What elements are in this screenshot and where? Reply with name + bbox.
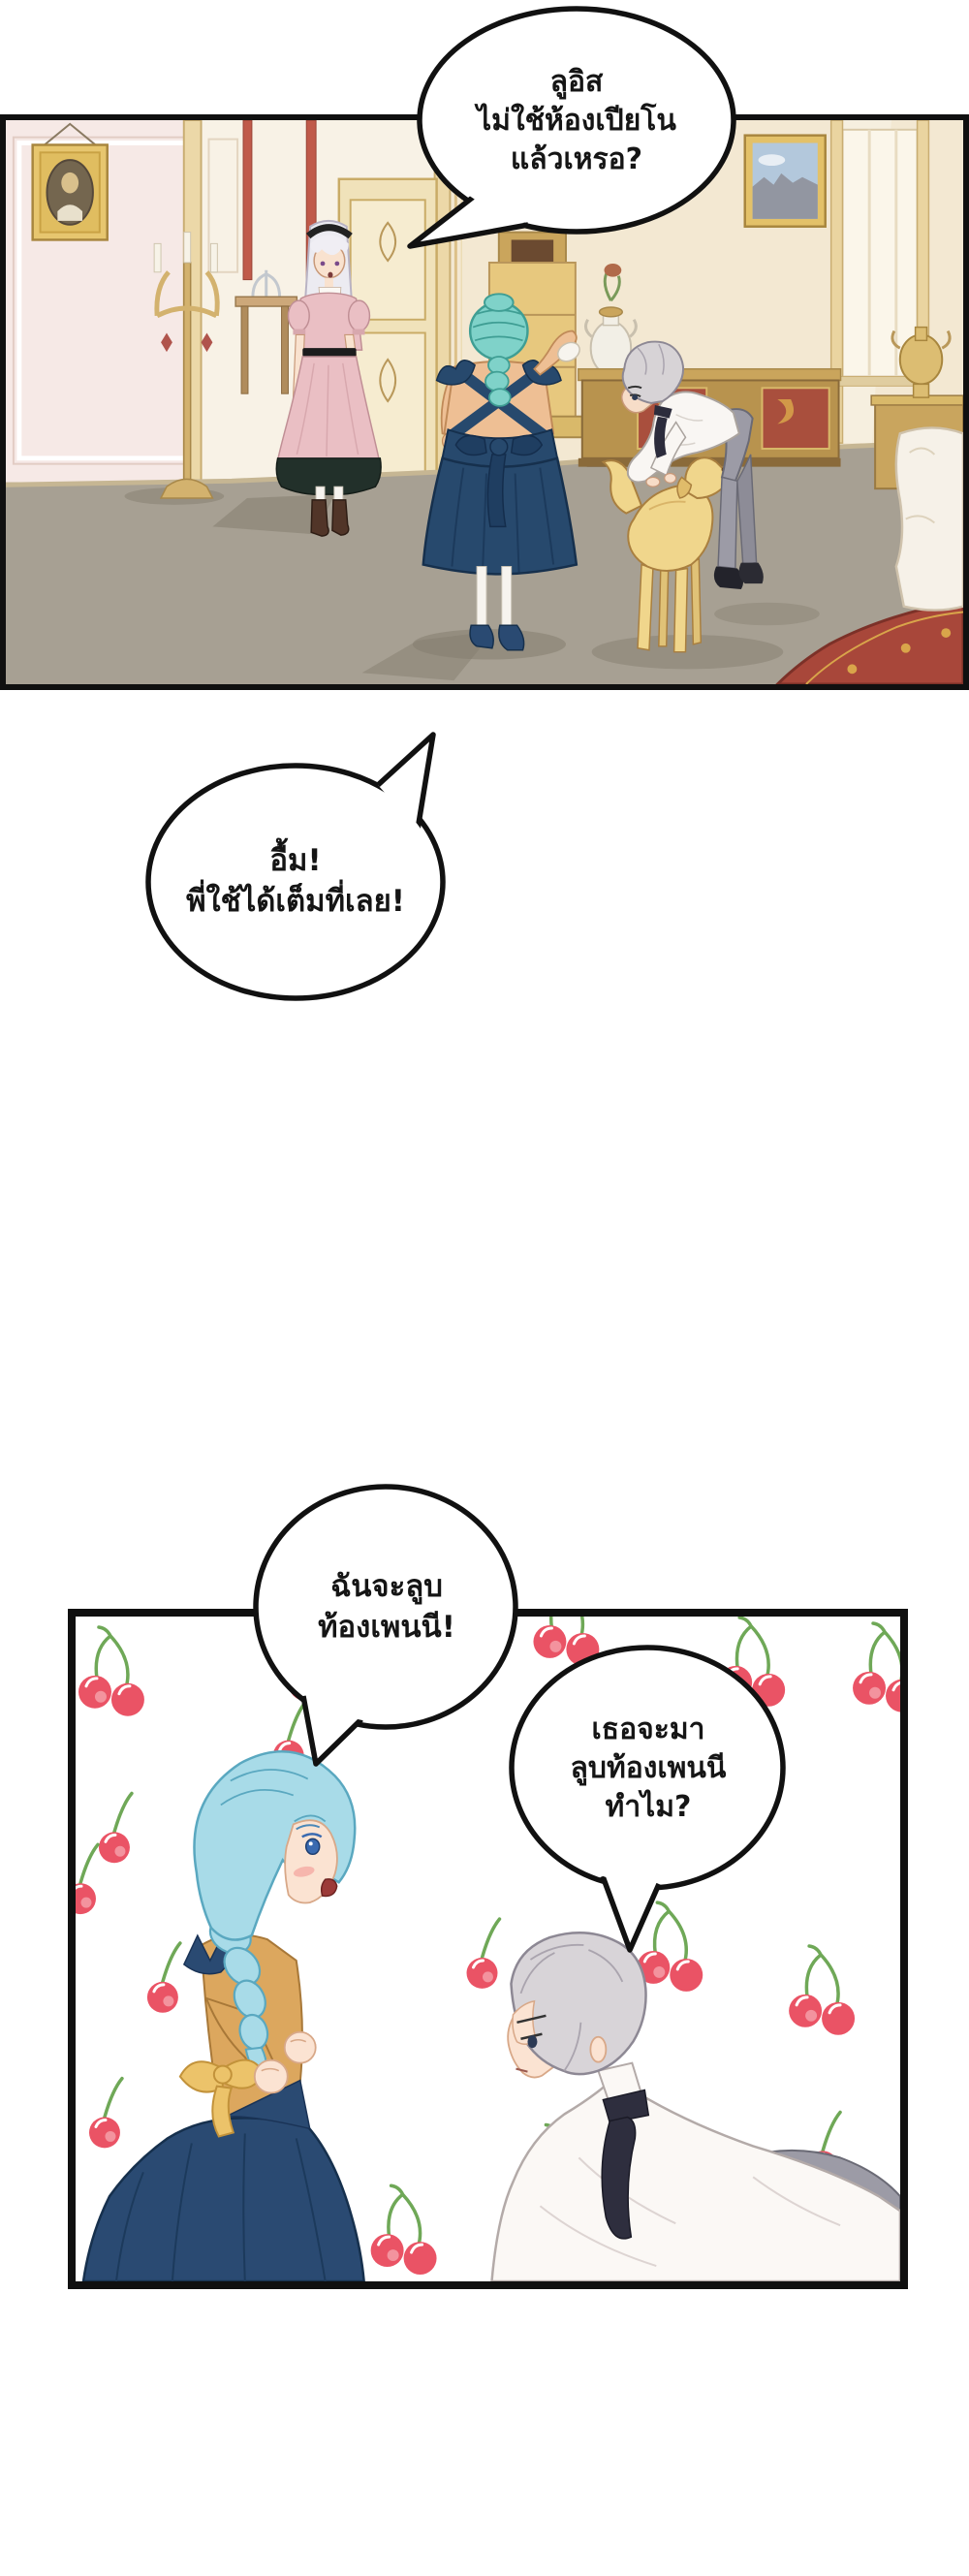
speech-bubble-3: ฉันจะลูบ ท้องเพนนี! <box>250 1481 526 1772</box>
landscape-painting <box>745 136 826 227</box>
comic-page: ลูอิส ไม่ใช้ห้องเปียโน แล้วเหรอ? อื้ม! พ… <box>0 0 969 2576</box>
speech-bubble-1: ลูอิส ไม่ใช้ห้องเปียโน แล้วเหรอ? <box>392 2 746 262</box>
speech-bubble-1-text: ลูอิส ไม่ใช้ห้องเปียโน แล้วเหรอ? <box>416 12 737 231</box>
bubble-line: ทำไม? <box>606 1788 692 1827</box>
speech-bubble-4-text: เธอจะมา ลูบท้องเพนนี ทำไม? <box>512 1648 785 1890</box>
blue-hair-girl <box>83 1751 364 2281</box>
speech-bubble-2-text: อื้ม! พี่ใช้ได้เต็มที่เลย! <box>148 766 443 998</box>
bubble-line: ไม่ใช้ห้องเปียโน <box>477 102 676 141</box>
bubble-line: ฉันจะลูบ <box>330 1567 443 1608</box>
bubble-line: แล้วเหรอ? <box>511 141 642 179</box>
speech-bubble-3-text: ฉันจะลูบ ท้องเพนนี! <box>256 1487 517 1729</box>
bubble-line: อื้ม! <box>269 841 321 882</box>
bubble-line: ลูบท้องเพนนี <box>571 1749 727 1788</box>
bubble-line: ลูอิส <box>550 63 604 102</box>
speech-bubble-2: อื้ม! พี่ใช้ได้เต็มที่เลย! <box>141 725 451 1004</box>
speech-bubble-4: เธอจะมา ลูบท้องเพนนี ทำไม? <box>506 1642 792 1957</box>
bubble-line: พี่ใช้ได้เต็มที่เลย! <box>186 882 405 923</box>
armchair <box>896 427 963 610</box>
bubble-line: เธอจะมา <box>592 1711 705 1749</box>
bubble-line: ท้องเพนนี! <box>318 1608 455 1649</box>
